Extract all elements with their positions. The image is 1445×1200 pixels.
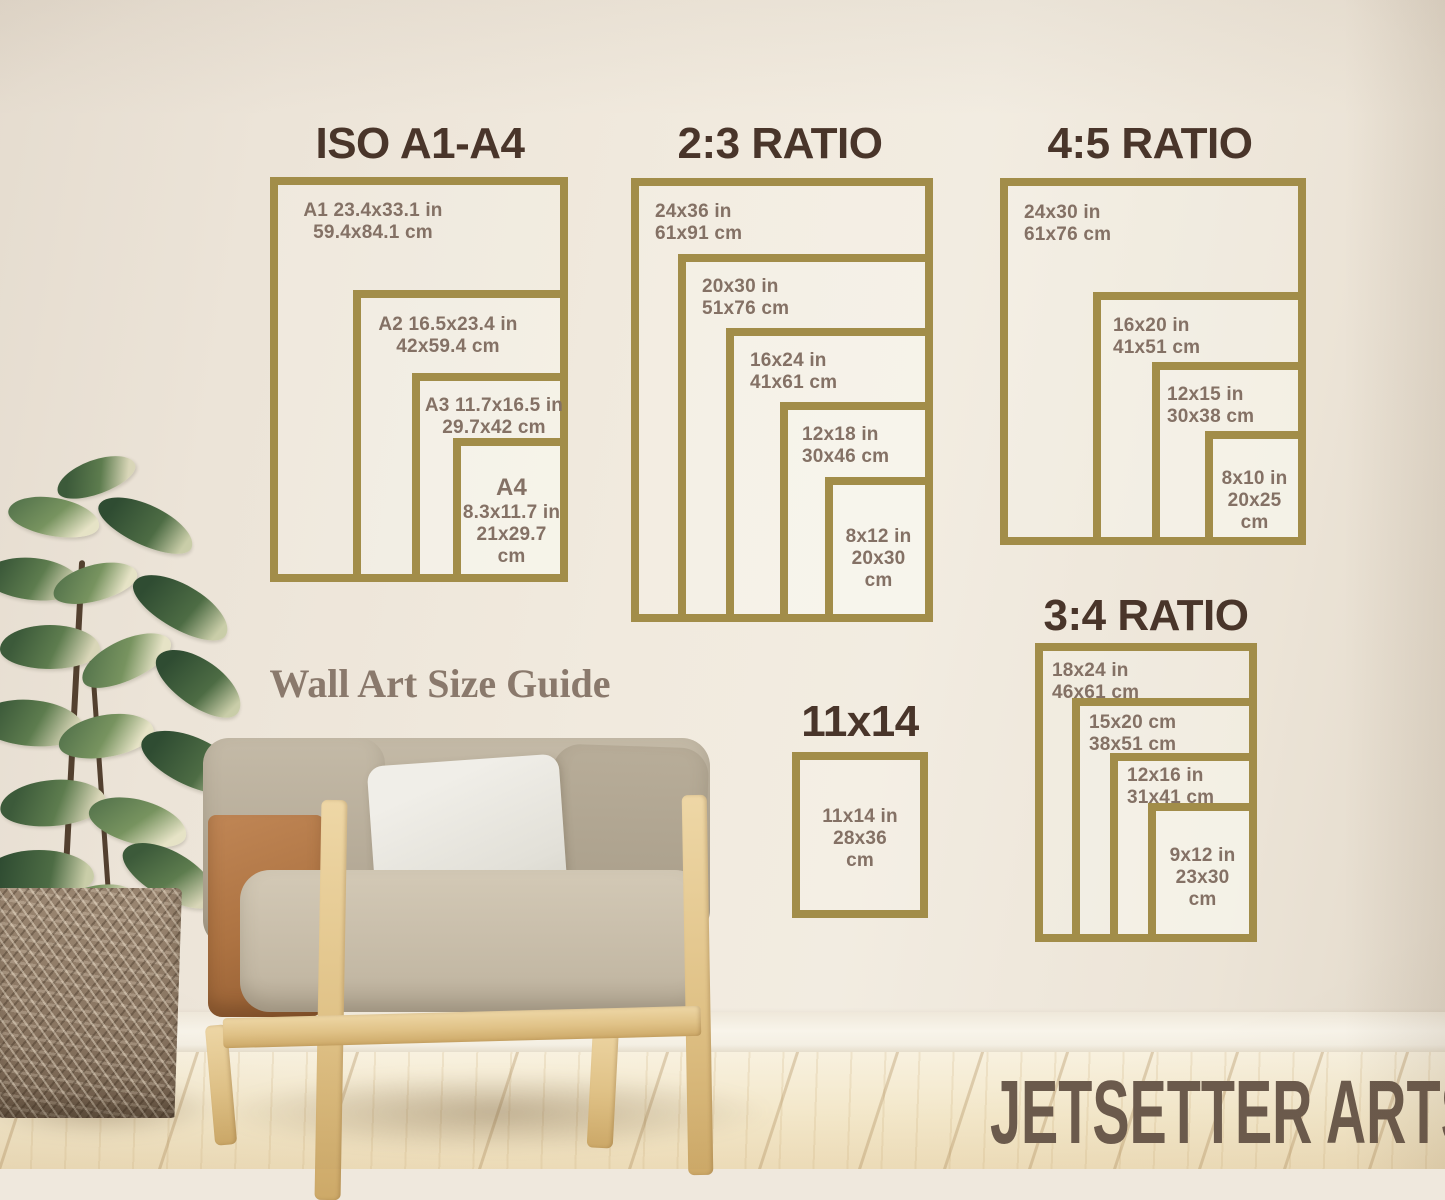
frame-label-a4: A4 8.3x11.7 in 21x29.7 cm: [455, 474, 568, 568]
floor-plank-seam: [917, 1052, 988, 1169]
chair-seat-cushion: [240, 870, 705, 1012]
frame-label-8x10: 8x10 in 20x25 cm: [1207, 468, 1302, 534]
chair-left-post: [315, 800, 348, 1200]
frame-label-11x14: 11x14 in 28x36 cm: [794, 806, 926, 872]
guide-caption: Wall Art Size Guide: [240, 660, 640, 707]
frame-label-16x20: 16x20 in 41x51 cm: [1113, 315, 1200, 359]
frame-label-24x36: 24x36 in 61x91 cm: [655, 201, 742, 245]
frame-label-24x30: 24x30 in 61x76 cm: [1024, 202, 1111, 246]
frame-label-12x18: 12x18 in 30x46 cm: [802, 424, 889, 468]
frame-label-12x15: 12x15 in 30x38 cm: [1167, 384, 1254, 428]
woven-basket: [0, 888, 182, 1118]
frame-label-a2: A2 16.5x23.4 in 42x59.4 cm: [368, 314, 528, 358]
armchair: [185, 730, 745, 1160]
frame-label-20x30: 20x30 in 51x76 cm: [702, 276, 789, 320]
section-title-iso: ISO A1-A4: [250, 122, 590, 166]
section-title-11x14: 11x14: [760, 700, 960, 744]
brand-watermark: JETSETTER ARTS: [990, 1068, 1445, 1158]
chair-front-right-leg: [587, 1019, 620, 1148]
frame-label-18x24: 18x24 in 46x61 cm: [1052, 660, 1139, 704]
frame-label-15x20: 15x20 cm 38x51 cm: [1089, 712, 1176, 756]
plant-leaf: [0, 625, 100, 669]
frame-label-16x24: 16x24 in 41x61 cm: [750, 350, 837, 394]
frame-label-a1: A1 23.4x33.1 in 59.4x84.1 cm: [293, 200, 453, 244]
floor-plank-seam: [832, 1052, 903, 1169]
frame-label-a3: A3 11.7x16.5 in 29.7x42 cm: [424, 395, 564, 439]
frame-label-9x12: 9x12 in 23x30 cm: [1150, 845, 1255, 911]
section-title-2-3: 2:3 RATIO: [610, 122, 950, 166]
section-title-4-5: 4:5 RATIO: [980, 122, 1320, 166]
frame-label-8x12: 8x12 in 20x30 cm: [827, 526, 930, 592]
section-title-3-4: 3:4 RATIO: [976, 594, 1316, 638]
frame-label-12x16: 12x16 in 31x41 cm: [1127, 765, 1214, 809]
